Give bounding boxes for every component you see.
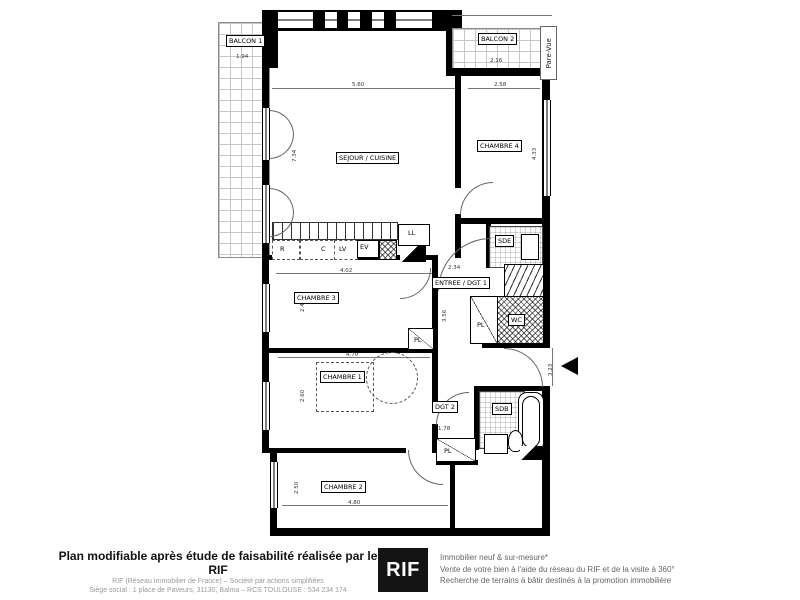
closet-under-stairs [470, 296, 498, 344]
dim-balcon2-width: 2.16 [490, 58, 502, 64]
sde-washbasin [521, 234, 539, 260]
wall [276, 528, 550, 536]
wall-pier [313, 12, 325, 28]
bathtub-inner [522, 396, 540, 448]
door-arc [400, 268, 431, 299]
kitchen-fridge [272, 240, 300, 260]
window [262, 382, 270, 430]
footer-right-block: Immobilier neuf & sur-mesure* Vente de v… [440, 552, 690, 587]
footer-left-block: Plan modifiable après étude de faisabili… [58, 549, 378, 595]
room-label-balcon-1: BALCON 1 [226, 35, 265, 47]
kitchen-unit [300, 240, 338, 260]
footer-address-line: Siège social : 1 place de Paveurs, 31130… [58, 586, 378, 595]
dim-chambre1-width: 4.70 [346, 352, 358, 358]
wall-pier [360, 12, 372, 28]
rif-logo: RIF [378, 548, 428, 592]
wall [455, 218, 550, 224]
floor-plan: BALCON 1 1.94 BALCON 2 2.16 Pare-Vue [0, 0, 800, 545]
wall-pier [384, 12, 396, 28]
room-label-chambre-2: CHAMBRE 2 [321, 481, 366, 493]
dim-entree-width: 2.34 [448, 265, 460, 271]
footer-service-line-2: Vente de votre bien à l'aide du réseau d… [440, 564, 690, 576]
room-label-sdb: SDB [492, 403, 512, 415]
footer-service-line-1: Immobilier neuf & sur-mesure* [440, 552, 690, 564]
wall [455, 76, 461, 188]
window [262, 185, 270, 243]
wall-pier [337, 12, 348, 28]
door-arc [269, 188, 294, 213]
dim-line [452, 15, 552, 16]
dim-sejour-width: 5.60 [352, 82, 364, 88]
door-arc [408, 450, 443, 485]
kitchen-sink-label: EV [360, 244, 369, 251]
kitchen-sink-drainer [379, 240, 397, 260]
kitchen-counter [272, 222, 398, 240]
turning-circle [366, 352, 418, 404]
dim-chambre4-width: 2.58 [494, 82, 506, 88]
kitchen-cooker-label: C [321, 246, 326, 253]
room-label-chambre-3: CHAMBRE 3 [294, 292, 339, 304]
bed-outline [316, 362, 374, 412]
dim-kitchen-width: 4.02 [340, 268, 352, 274]
closet-label: PL [414, 337, 422, 344]
window [270, 462, 278, 508]
door-arc [269, 134, 294, 159]
duct-block [400, 246, 426, 262]
pare-vue-label: Pare-Vue [545, 38, 553, 68]
door-arc [460, 182, 493, 215]
footer-service-line-3: Recherche de terrains à bâtir destinés à… [440, 575, 690, 587]
closet-label: PL [477, 322, 485, 329]
dim-chambre2-width: 4.80 [348, 500, 360, 506]
wall-pier [432, 12, 446, 28]
footer-company-line: RIF (Réseau Immobilier de France) – Soci… [58, 577, 378, 586]
door-arc [269, 110, 294, 135]
dim-line [272, 88, 455, 89]
duct-block [520, 446, 542, 460]
window [262, 108, 270, 160]
room-label-entree-dgt1: ENTREE / DGT 1 [432, 277, 490, 289]
dim-sejour-height: 7.34 [292, 150, 298, 162]
kitchen-fridge-label: R [280, 246, 285, 253]
wall [432, 353, 438, 401]
dim-chambre4-height: 4.33 [532, 148, 538, 160]
dim-chambre1-height: 2.60 [300, 390, 306, 402]
dim-line [282, 505, 448, 506]
dim-entree-height: 3.56 [442, 310, 448, 322]
entrance-door-arc [504, 348, 543, 387]
room-label-wc: WC [508, 314, 525, 326]
room-label-chambre-1: CHAMBRE 1 [320, 371, 365, 383]
wall [276, 448, 406, 453]
pare-vue-screen: Pare-Vue [540, 26, 557, 80]
dim-line [468, 88, 540, 89]
wall [446, 68, 550, 76]
dim-entry-height: 3.23 [548, 364, 554, 376]
room-label-chambre-4: CHAMBRE 4 [477, 140, 522, 152]
kitchen-dishwasher-label: LV [339, 246, 346, 253]
wall [450, 460, 455, 530]
footer-title: Plan modifiable après étude de faisabili… [58, 549, 378, 577]
room-label-sde: SDE [495, 235, 514, 247]
window [262, 284, 270, 332]
window [543, 100, 551, 196]
room-label-dgt2: DGT 2 [432, 401, 458, 413]
dim-chambre2-height: 2.50 [294, 482, 300, 494]
sdb-washbasin [484, 434, 508, 454]
sejour-top-window-wall [262, 10, 462, 31]
room-label-balcon-2: BALCON 2 [478, 33, 517, 45]
dim-dgt2-width: 1.78 [438, 426, 450, 432]
dim-balcon1-width: 1.94 [236, 54, 248, 60]
closet-label: PL [444, 448, 452, 455]
room-label-sejour-cuisine: SEJOUR / CUISINE [336, 152, 399, 164]
laundry-closet-label: LL [408, 230, 415, 237]
entrance-arrow [561, 357, 578, 375]
